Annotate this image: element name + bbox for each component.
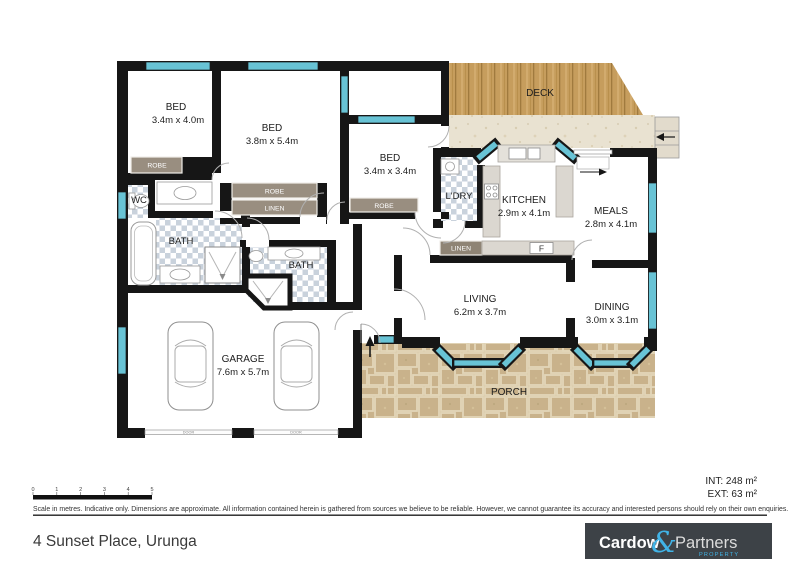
bath1-label: BATH — [169, 236, 194, 247]
entry-steps — [655, 117, 679, 158]
meals-dims: 2.8m x 4.1m — [585, 219, 637, 230]
bed1-label: BED — [166, 102, 187, 113]
bed2-label: BED — [262, 123, 283, 134]
window — [248, 62, 318, 70]
door-arc — [394, 289, 425, 320]
linen2-label: LINEN — [451, 246, 471, 253]
kitchen-bench — [483, 166, 500, 237]
sink-bowl — [509, 148, 526, 159]
laundry-label: L'DRY — [446, 191, 474, 202]
sink — [285, 249, 303, 258]
dining-label: DINING — [595, 302, 630, 313]
robe3-label: ROBE — [374, 203, 394, 210]
kitchen-label: KITCHEN — [502, 195, 546, 206]
window — [118, 192, 126, 219]
garage-dims: 7.6m x 5.7m — [217, 367, 269, 378]
internal-area: INT: 248 m² — [705, 476, 757, 487]
bed2-dims: 3.8m x 5.4m — [246, 136, 298, 147]
logo-ampersand-icon: & — [651, 525, 677, 559]
window — [341, 76, 348, 113]
linen1-label: LINEN — [264, 206, 284, 213]
door-arc — [403, 228, 430, 255]
door-arc — [335, 312, 353, 330]
door-arc — [572, 240, 592, 260]
kitchen-dims: 2.9m x 4.1m — [498, 208, 550, 219]
external-area: EXT: 63 m² — [708, 489, 758, 500]
deck-label: DECK — [526, 88, 554, 99]
robe2-label: ROBE — [265, 189, 285, 196]
window — [649, 183, 657, 233]
bed3-label: BED — [380, 153, 401, 164]
sink — [174, 187, 196, 200]
kitchen-bench — [482, 241, 574, 255]
window — [649, 272, 657, 329]
scale-bar-rule — [33, 495, 152, 500]
logo-tagline: PROPERTY — [699, 552, 739, 558]
living-dims: 6.2m x 3.7m — [454, 307, 506, 318]
porch-label: PORCH — [491, 387, 527, 398]
garage-door1-label: DOOR — [183, 431, 195, 435]
kitchen-bench — [556, 166, 573, 217]
bed3-dims: 3.4m x 3.4m — [364, 166, 416, 177]
window — [118, 327, 126, 374]
scale-bar: 0 1 2 3 4 5 — [31, 487, 153, 500]
bath2-label: BATH — [289, 260, 314, 271]
floorplan-canvas: BED 3.4m x 4.0m BED 3.8m x 5.4m BED 3.4m… — [0, 0, 800, 565]
wc-label: WC — [131, 195, 147, 206]
stove-icon — [485, 184, 499, 199]
address: 4 Sunset Place, Urunga — [33, 533, 197, 550]
meals-label: MEALS — [594, 206, 628, 217]
car — [274, 322, 319, 410]
fridge-label: F — [539, 244, 544, 254]
robe1-label: ROBE — [147, 163, 167, 170]
divider-rule — [33, 515, 767, 516]
logo-partners: Partners — [675, 534, 737, 552]
path-area — [449, 115, 655, 148]
dining-dims: 3.0m x 3.1m — [586, 315, 638, 326]
kitchen-sink-counter — [498, 145, 555, 162]
agency-logo: Cardow & Partners PROPERTY — [585, 523, 772, 559]
window — [358, 116, 415, 123]
slide-arrow-icon — [599, 169, 607, 176]
floorplan-page: BED 3.4m x 4.0m BED 3.8m x 5.4m BED 3.4m… — [0, 0, 800, 565]
disclaimer-text: Scale in metres. Indicative only. Dimens… — [33, 506, 788, 513]
garage-door2-label: DOOR — [290, 431, 302, 435]
living-label: LIVING — [464, 294, 497, 305]
bed1-dims: 3.4m x 4.0m — [152, 115, 204, 126]
garage-label: GARAGE — [222, 354, 265, 365]
sink — [170, 269, 190, 280]
sliding-door — [574, 150, 612, 176]
car — [168, 322, 213, 410]
door-arc — [443, 221, 465, 243]
toilet — [249, 251, 263, 262]
sink-bowl — [528, 148, 540, 159]
entry-arrow-icon — [366, 336, 375, 346]
window — [146, 62, 210, 70]
